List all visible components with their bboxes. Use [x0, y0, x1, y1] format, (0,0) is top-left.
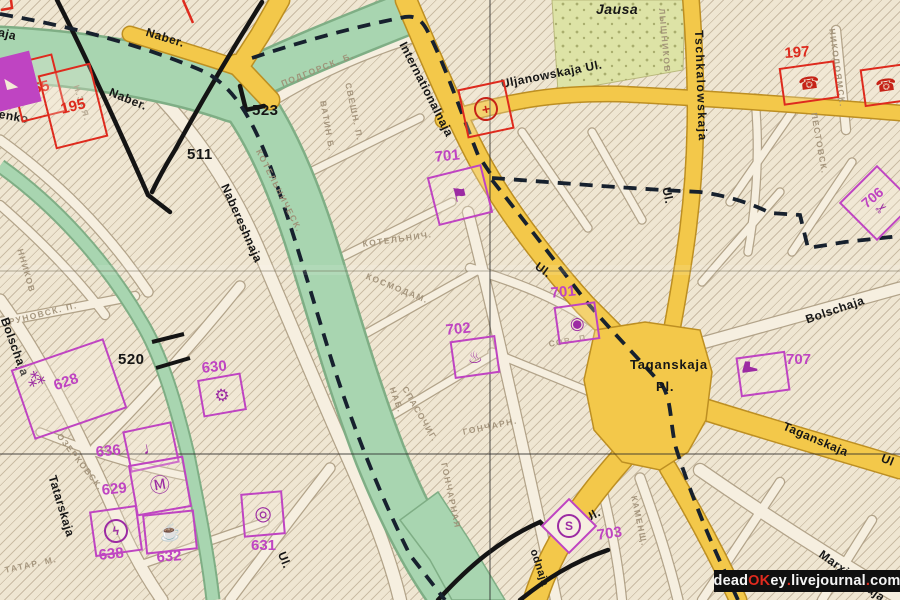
poi-number: 195 — [59, 96, 87, 117]
poi-number-630: 630 — [201, 358, 227, 376]
boot-icon — [738, 356, 762, 375]
watermark-text: dead — [714, 574, 749, 589]
poi-number-701: 701 — [434, 147, 460, 165]
poi-number-628: 628 — [52, 371, 81, 393]
red-cross-icon: + — [472, 95, 500, 123]
telephone-icon: ☎ — [874, 75, 897, 95]
samovar-icon: ♨ — [466, 348, 483, 367]
camera-icon: ◉ — [568, 314, 585, 333]
square-label-pl: Pl. — [656, 380, 674, 393]
scanned-city-map: ПОДГОРСК. Б. СВЕШН. П. ВАТИН Б. КОТЕЛЬНИ… — [0, 0, 900, 600]
dial-icon: ◎ — [253, 503, 272, 524]
poi-number-629: 629 — [101, 480, 127, 498]
street-label-tschkalowskaja: Tschkalowskaja — [693, 30, 709, 142]
poi-box-702: ♨ — [450, 335, 501, 379]
scissors-icon: ✂ — [872, 199, 890, 217]
telephone-icon: ☎ — [797, 73, 820, 93]
street-label-ul: Ul. — [660, 186, 675, 205]
poi-number-632: 632 — [156, 548, 182, 565]
poi-number-701: 701 — [550, 283, 576, 301]
poi-number-636: 636 — [95, 442, 121, 460]
poi-box-701b: ◉ — [554, 301, 601, 344]
poi-number-703: 703 — [596, 525, 623, 543]
poi-box-197: ☎ — [779, 60, 840, 105]
river-label-jausa: Jausa — [596, 2, 638, 16]
poi-box-629: Ⓜ — [128, 456, 192, 517]
route-number-520: 520 — [118, 352, 145, 367]
watermark-text: ey — [770, 574, 787, 589]
watermark-text: com — [870, 574, 900, 589]
poi-box-medical: + — [457, 80, 514, 139]
street-label-partial: aja — [0, 26, 18, 42]
lightning-icon: ϟ — [102, 517, 129, 544]
poi-number-197: 197 — [784, 44, 810, 61]
poi-box-631: ◎ — [240, 490, 286, 537]
poi-number-631: 631 — [251, 538, 276, 553]
poi-number-702: 702 — [445, 320, 471, 338]
grapes-icon: ⁂ — [25, 368, 48, 391]
square-label-taganskaja: Taganskaja — [630, 358, 708, 371]
poi-box-707 — [735, 351, 790, 398]
taganskaja-square — [584, 322, 712, 470]
watermark-text-red: OK — [748, 574, 770, 589]
flag-icon: ⚑ — [449, 184, 470, 207]
circled-m-icon: Ⓜ — [148, 474, 171, 497]
route-number-523: 523 — [252, 103, 279, 118]
kettle-icon: ☕ — [159, 522, 182, 541]
triangle-icon: ◣ — [4, 73, 19, 90]
poi-number-638: 638 — [98, 545, 124, 563]
metro-station-icon: S — [557, 514, 581, 538]
poi-number-707: 707 — [786, 352, 811, 367]
fold-crease — [0, 265, 900, 275]
watermark-text: livejournal — [791, 574, 866, 589]
stemmed-dot-icon: ♩ — [141, 437, 161, 457]
poi-box-630: ⚙ — [197, 372, 247, 417]
route-number-511: 511 — [187, 147, 213, 162]
gear-flower-icon: ⚙ — [213, 385, 231, 404]
poi-box-telephone-right: ☎ — [860, 63, 900, 107]
watermark: deadOKey.livejournal.com — [714, 570, 900, 592]
